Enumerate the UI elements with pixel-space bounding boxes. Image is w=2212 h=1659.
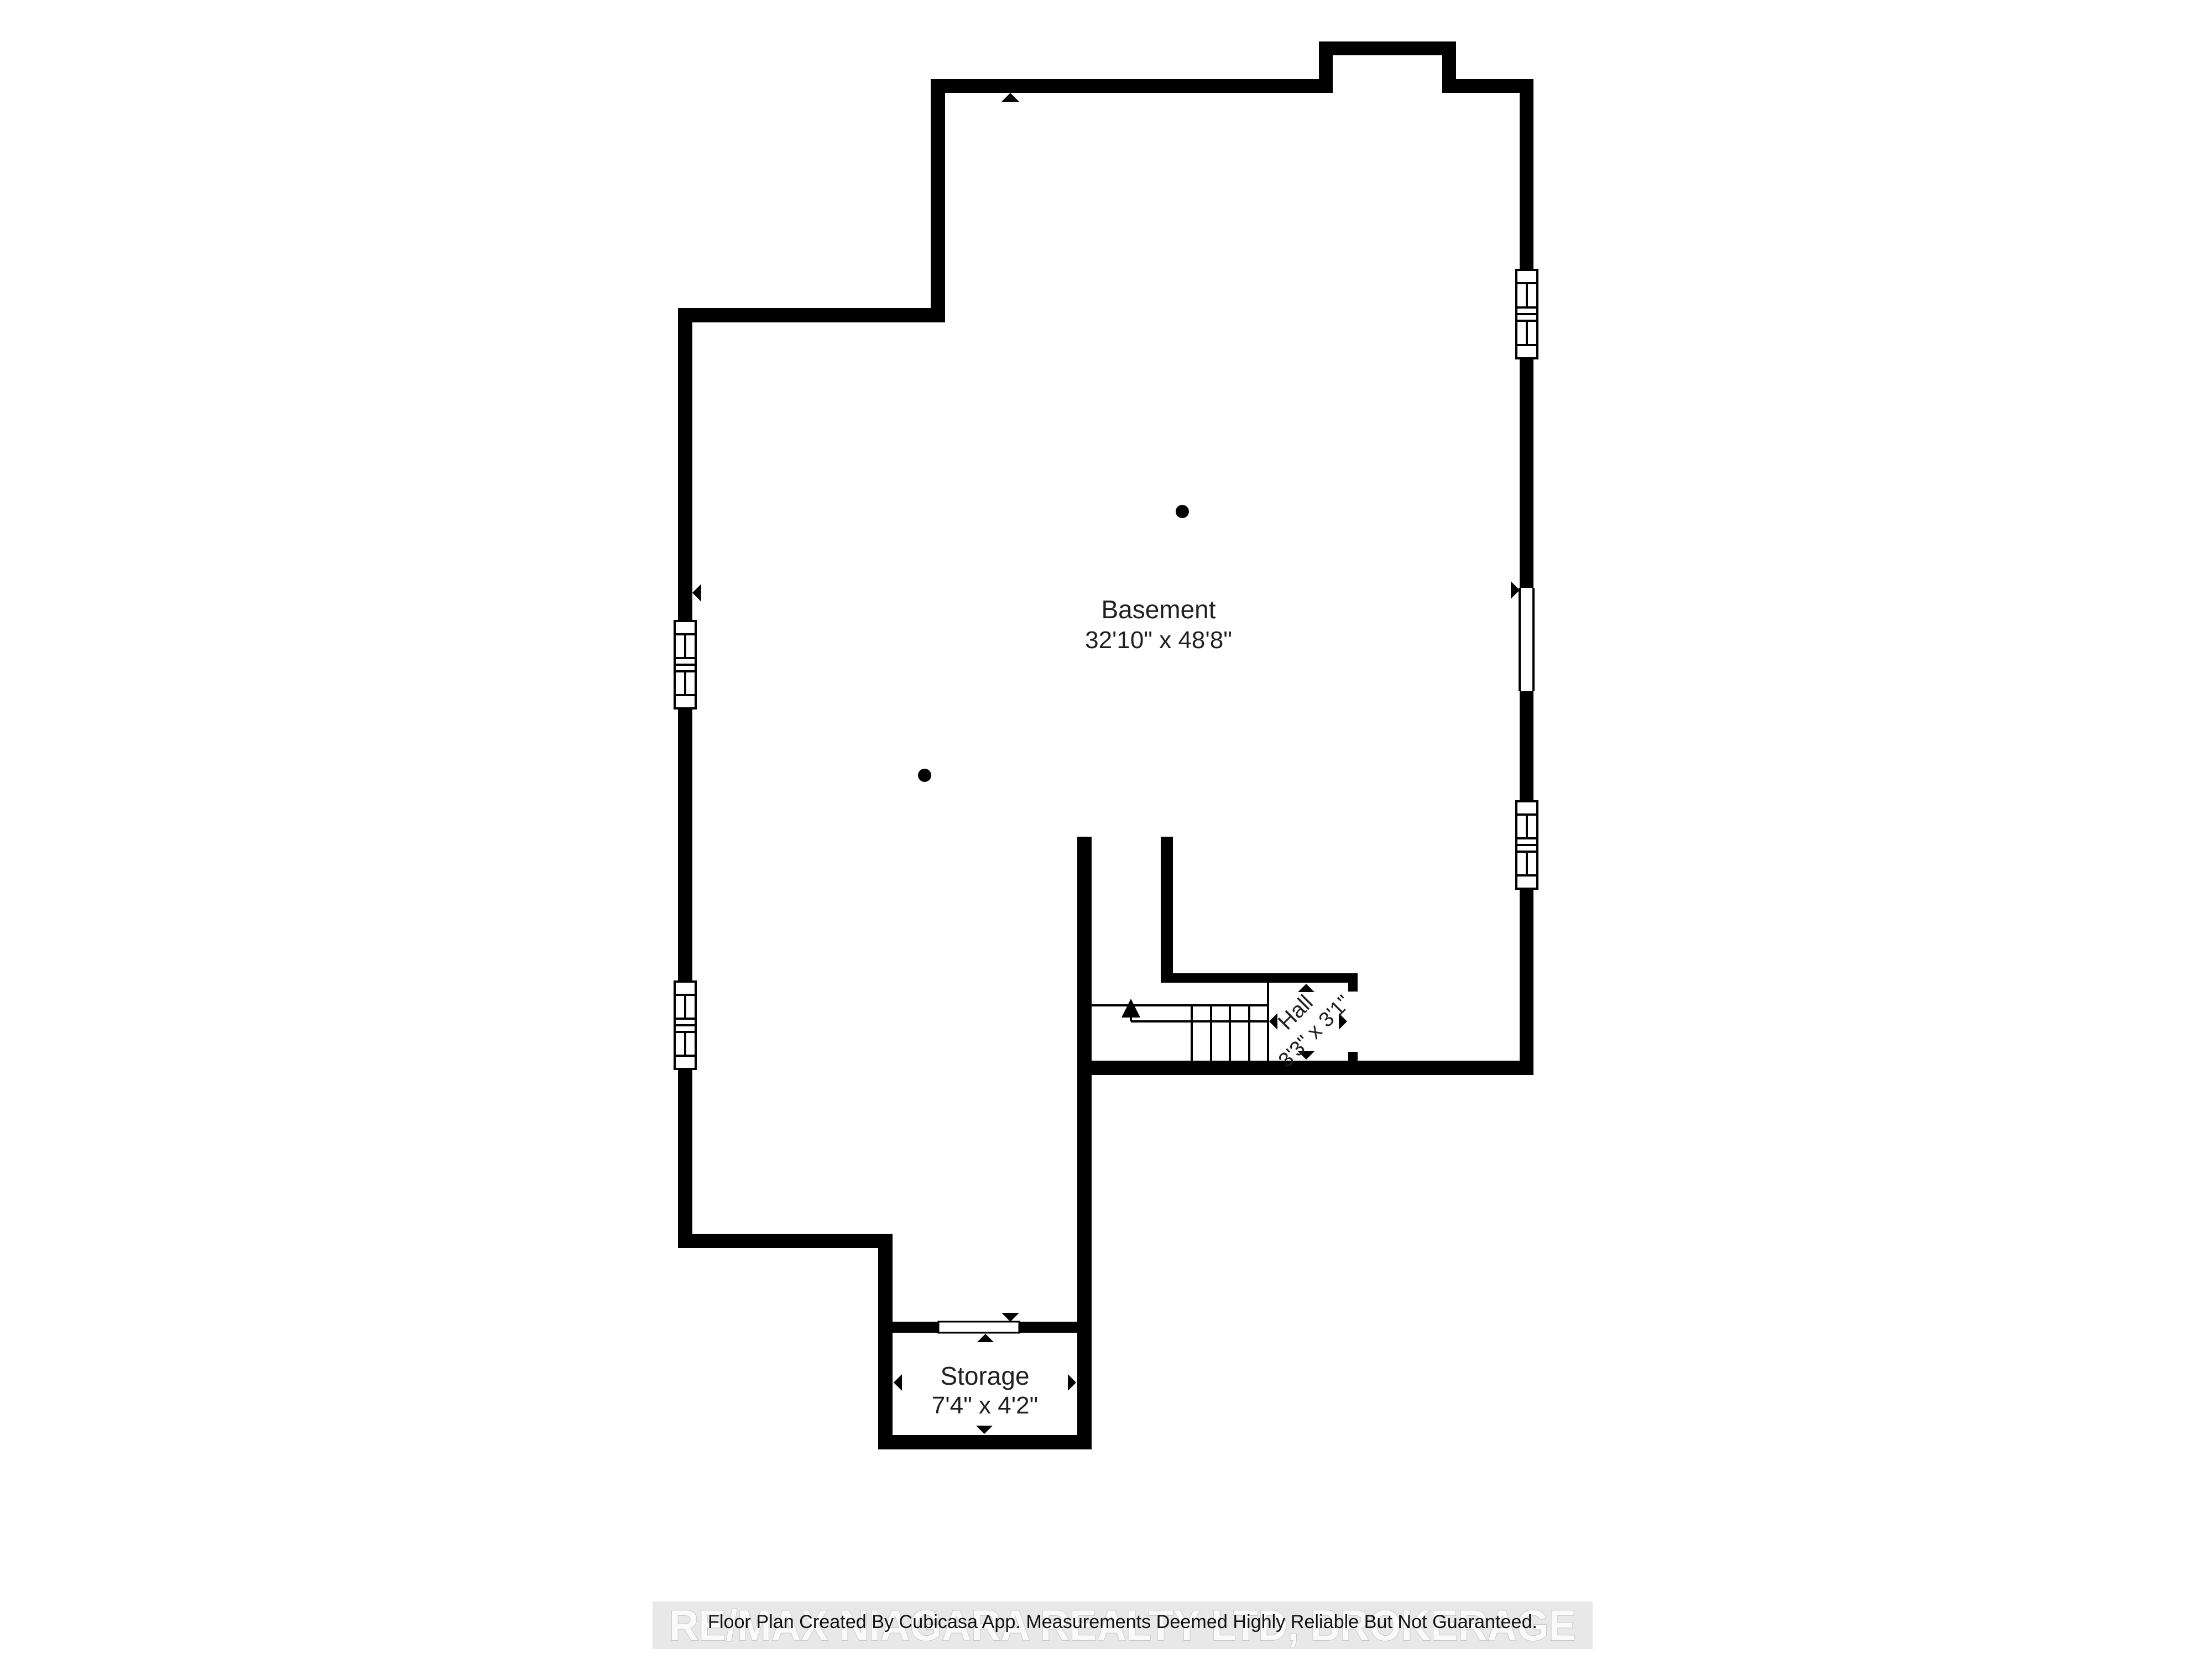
bottom-wall	[1077, 1061, 1533, 1075]
bump-right-bar	[1442, 41, 1456, 93]
floor-plan-svg: Basement 32'10" x 48'8" Hall 3'3" x 3'1"…	[0, 0, 2212, 1659]
hall-top-stub	[1348, 983, 1358, 992]
footer: RE/MAX NIAGARA REALTY LTD, BROKERAGE Flo…	[653, 1601, 1593, 1650]
room-labels: Basement 32'10" x 48'8" Hall 3'3" x 3'1"…	[932, 595, 1355, 1419]
stairs	[1092, 983, 1268, 1061]
step-wall	[678, 308, 945, 322]
stair-storage-wall	[1077, 837, 1092, 1449]
stair-right-wall	[1161, 837, 1173, 983]
storage-dimensions: 7'4" x 4'2"	[932, 1392, 1038, 1419]
right-wall-opening	[1519, 588, 1535, 691]
openings	[938, 588, 1535, 1333]
upper-left-wall	[931, 79, 945, 322]
storage-label: Storage	[940, 1361, 1029, 1390]
bump-top-bar	[1319, 41, 1456, 55]
basement-dimensions: 32'10" x 48'8"	[1085, 627, 1232, 654]
windows	[675, 270, 1537, 1069]
basement-left-arrow-icon	[692, 584, 701, 602]
basement-right-arrow-icon	[1511, 581, 1520, 599]
hall-bottom-stub	[1348, 1052, 1358, 1061]
storage-bottom-wall	[878, 1435, 1092, 1449]
floor-plan-page: Basement 32'10" x 48'8" Hall 3'3" x 3'1"…	[0, 0, 2212, 1659]
storage-bottom-arrow-icon	[976, 1426, 993, 1434]
window-right-lower	[1516, 801, 1537, 889]
support-column-dot	[1176, 505, 1189, 518]
window-left-upper	[675, 621, 696, 708]
window-right-upper	[1516, 270, 1537, 358]
stair-direction-arrow	[1121, 999, 1268, 1021]
basement-top-arrow-icon	[1001, 93, 1019, 102]
storage-right-arrow-icon	[1068, 1374, 1076, 1391]
hall-dimensions: 3'3" x 3'1"	[1274, 991, 1355, 1072]
left-wall	[678, 308, 692, 1248]
window-left-lower	[675, 982, 696, 1069]
interior-walls	[1077, 837, 1358, 1449]
exterior-walls	[678, 41, 1533, 1449]
storage-door-opening	[938, 1322, 1019, 1333]
storage-left-wall	[878, 1234, 893, 1449]
storage-top-arrow-icon	[977, 1334, 994, 1342]
support-column-dot	[918, 769, 931, 782]
lower-left-wall	[678, 1234, 893, 1248]
basement-bottom-arrow-icon	[1001, 1313, 1019, 1322]
hall-top-wall	[1161, 973, 1358, 983]
storage-left-arrow-icon	[894, 1374, 902, 1391]
basement-label: Basement	[1101, 595, 1215, 624]
top-wall-left	[931, 79, 1319, 93]
disclaimer-text: Floor Plan Created By Cubicasa App. Meas…	[708, 1611, 1537, 1632]
dimension-markers	[692, 93, 1520, 1434]
right-wall	[1520, 79, 1533, 1075]
